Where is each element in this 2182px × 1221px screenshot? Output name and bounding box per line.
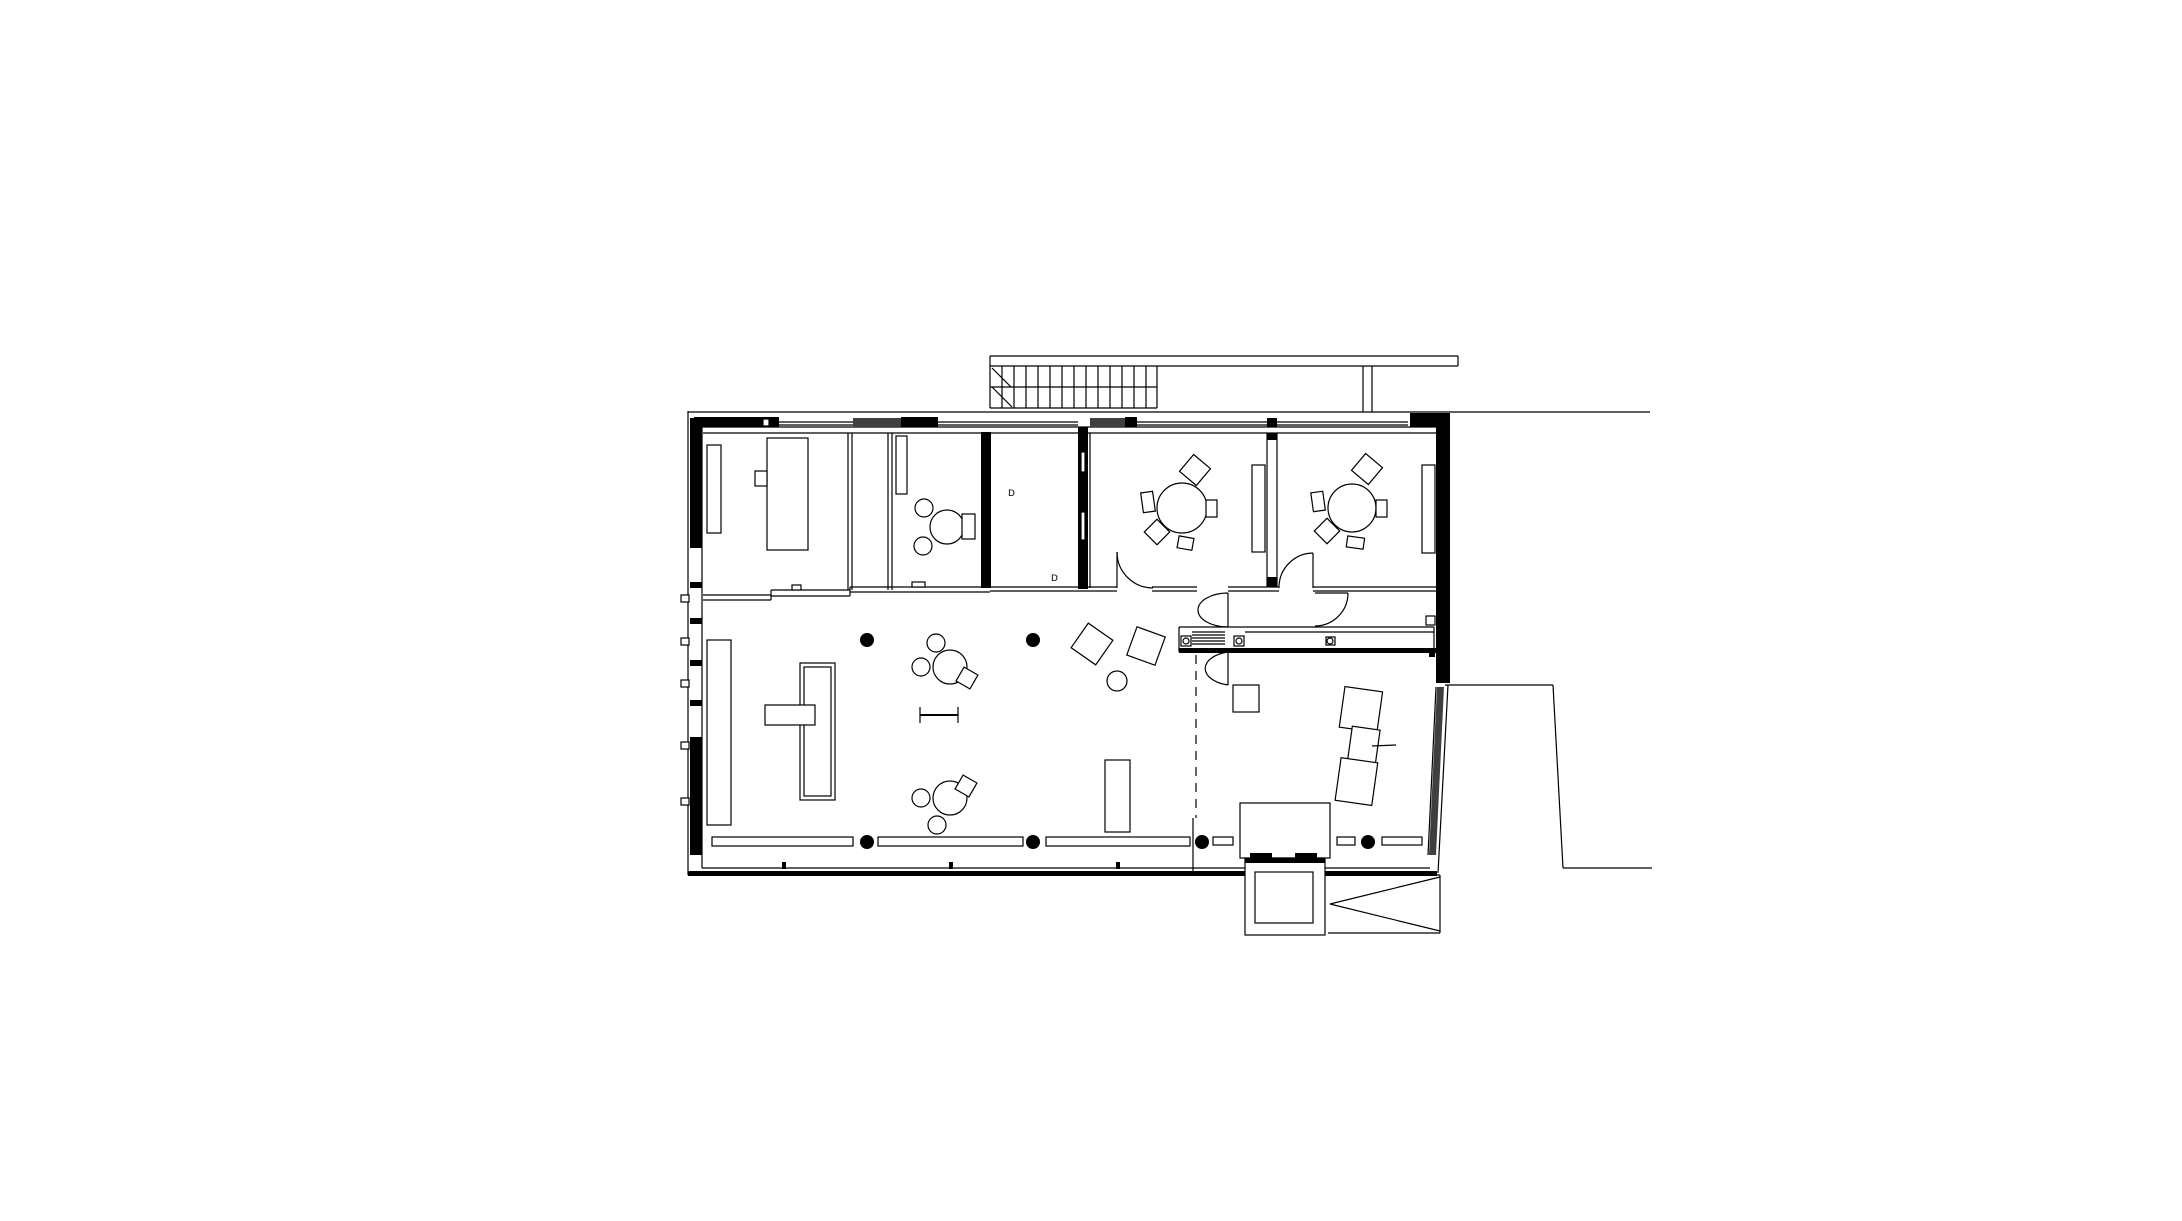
room2-chair [962, 514, 975, 539]
room2-east-wall-black [981, 432, 991, 588]
room4-cabinet [1422, 465, 1435, 553]
east-wall-angled [1429, 687, 1444, 855]
column-dot [1195, 835, 1209, 849]
terrace-edge [1553, 685, 1563, 868]
hall-counter-vertical [800, 663, 835, 800]
entry-porch-threshold [1245, 858, 1325, 863]
vestibule-room [1240, 803, 1330, 858]
south-wall-tick [782, 862, 786, 869]
room2-chair [914, 537, 932, 555]
room3-chair [1141, 491, 1156, 512]
floorplan-page: DD [0, 0, 2182, 1221]
west-facade-tick [681, 595, 689, 602]
west-wall-black [690, 418, 702, 548]
lounge-pouf [1107, 671, 1127, 691]
top-wall-black-segment [1125, 417, 1137, 427]
column-dot [1026, 633, 1040, 647]
south-wall-thick [688, 871, 1245, 876]
floor-grille-strip [712, 837, 853, 846]
room2-table [930, 510, 964, 544]
ramp-diagonal [1330, 877, 1440, 904]
west-wall-mullion [690, 582, 702, 588]
sliding-door-mark [792, 585, 801, 590]
column-dot [860, 633, 874, 647]
top-wall-gray-segment [1090, 418, 1125, 427]
room3-west-wall-black [1078, 427, 1088, 589]
top-wall-black-segment [901, 417, 938, 427]
kitchen-unit-middle [1348, 726, 1380, 763]
east-wall-outlet [1426, 616, 1435, 625]
hall-table-1-chair [912, 658, 930, 676]
west-facade-tick [681, 798, 689, 805]
west-wall-mullion [690, 700, 702, 706]
hall-plinth [1105, 760, 1130, 832]
west-wall-mullion [690, 660, 702, 666]
hall-table-2-chair [928, 816, 946, 834]
south-wall-tick [949, 862, 953, 869]
hall-table-2-chair [912, 789, 930, 807]
west-wall-black [690, 743, 702, 855]
room2-chair [915, 499, 933, 517]
floor-grille-strip [878, 837, 1023, 846]
door-arc-room4 [1279, 553, 1313, 588]
room3-west-wall-slit [1081, 452, 1085, 472]
south-wall-tick [1116, 862, 1120, 869]
column-dot [1026, 835, 1040, 849]
entry-porch-inner [1255, 872, 1313, 923]
west-wall-mullion [690, 618, 702, 624]
floor-grille-strip [1337, 837, 1355, 845]
west-wall-mullion [690, 737, 702, 743]
room4-chair [1346, 536, 1364, 549]
room1-sideboard [707, 445, 721, 533]
stool-square [1233, 685, 1259, 712]
kitchen-unit-lower [1335, 758, 1378, 806]
room4-chair [1352, 454, 1383, 485]
room3-chair [1180, 455, 1211, 486]
door-arc-room3 [1117, 552, 1153, 588]
floorplan-drawing: DD [0, 0, 2182, 1221]
door-mark-label: D [1051, 574, 1058, 584]
sliding-door-mark [912, 582, 925, 587]
room4-table [1328, 484, 1376, 532]
west-facade-tick [681, 742, 689, 749]
room4-chair [1376, 500, 1387, 517]
west-facade-tick [681, 680, 689, 687]
entrance-door-swing [1205, 652, 1228, 685]
west-facade-tick [681, 638, 689, 645]
room4-chair [1311, 491, 1326, 511]
door-mark-label: D [1008, 489, 1015, 499]
ramp-diagonal [1330, 904, 1440, 931]
partition-end-block [1267, 433, 1277, 440]
counter-thick-edge [1179, 648, 1436, 653]
room3-table [1157, 483, 1207, 533]
room3-cabinet [1252, 465, 1265, 552]
hall-counter-horizontal [765, 705, 815, 725]
partition-end-block [1267, 577, 1277, 587]
kitchen-unit-upper [1339, 687, 1382, 733]
room1-wardrobe [767, 438, 808, 550]
room2-shelf [896, 436, 907, 494]
column-dot [1361, 835, 1375, 849]
counter-end-tab [1429, 652, 1435, 657]
floor-grille-strip [1382, 837, 1422, 845]
window-bench [707, 640, 731, 825]
room3-chair [1206, 500, 1217, 517]
entrance-door-swing [1198, 593, 1228, 627]
column-dot [860, 835, 874, 849]
lounge-cushion [1071, 623, 1113, 665]
floor-grille-strip [1046, 837, 1190, 846]
top-wall-gray-segment [853, 418, 901, 427]
door-arc-service [1315, 593, 1348, 626]
room1-wardrobe-ledge [755, 471, 767, 486]
hall-table-1-chair [927, 634, 945, 652]
room3-west-wall-slit [1081, 512, 1085, 540]
floor-grille-strip [1213, 837, 1233, 845]
lounge-cushion [1127, 627, 1165, 665]
room3-chair [1177, 536, 1194, 550]
east-wall-black [1436, 418, 1450, 683]
top-wall-notch [763, 419, 769, 426]
